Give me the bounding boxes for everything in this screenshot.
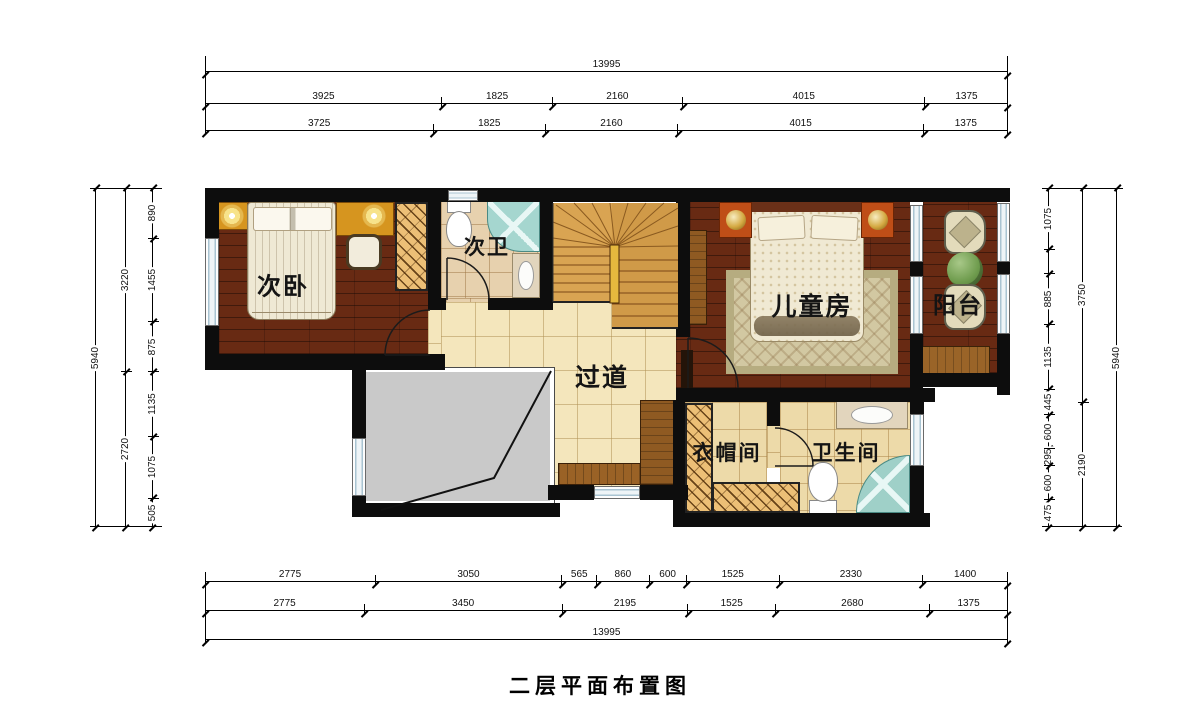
dim-value: 505 [148, 502, 158, 523]
dim-value: 3725 [308, 119, 330, 129]
window [910, 205, 923, 262]
dim-value: 890 [148, 203, 158, 224]
wall [205, 354, 445, 370]
dim-segment: 1455 [152, 239, 165, 322]
window [594, 486, 640, 499]
dim-left-mid: 32202720 [125, 188, 138, 527]
label-kids-room: 儿童房 [771, 287, 852, 323]
dim-segment: 1375 [925, 91, 1008, 104]
sink [836, 401, 908, 429]
dim-bottom-inner: 27753050565860600152523301400 [205, 569, 1008, 582]
dim-value: 600 [1044, 421, 1054, 442]
extension-line [90, 526, 162, 527]
dim-bottom-mid: 277534502195152526801375 [205, 598, 1008, 611]
wall [548, 485, 594, 500]
dim-value: 1525 [721, 599, 743, 609]
dim-segment: 3725 [205, 118, 433, 131]
wardrobe [395, 202, 428, 291]
dim-value: 13995 [593, 628, 621, 638]
wall [540, 188, 553, 310]
dim-value: 885 [1044, 289, 1054, 310]
dim-value: 875 [148, 337, 158, 358]
dim-segment: 2680 [775, 598, 929, 611]
dim-value: 2720 [121, 436, 131, 462]
window [910, 276, 923, 334]
dim-value: 1375 [955, 119, 977, 129]
window [997, 203, 1010, 262]
wall [673, 400, 685, 527]
dim-value: 3050 [457, 570, 479, 580]
dim-segment: 1825 [433, 118, 545, 131]
dim-right-total: 5940 [1116, 188, 1129, 527]
dim-value: 1375 [957, 599, 979, 609]
void-area [358, 368, 554, 505]
extension-line [1042, 526, 1122, 527]
dim-segment: 2775 [205, 569, 375, 582]
wall [352, 503, 560, 517]
dim-value: 2775 [279, 570, 301, 580]
label-second-bath: 次卫 [464, 231, 510, 261]
label-bathroom: 卫生间 [812, 437, 881, 467]
dim-value: 3925 [312, 92, 334, 102]
dim-right-mid: 37502190 [1082, 188, 1095, 527]
dim-left-inner: 890145587511351075505 [152, 188, 165, 527]
dim-segment: 3450 [364, 598, 562, 611]
dim-value: 1135 [1044, 344, 1054, 370]
dim-segment: 4015 [678, 118, 924, 131]
wall [910, 466, 924, 527]
nightstand-lamp [719, 202, 752, 238]
dim-value: 4015 [790, 119, 812, 129]
dim-value: 1375 [955, 92, 977, 102]
lamp-icon [362, 204, 386, 228]
lamp-icon [220, 204, 244, 228]
wardrobe [712, 482, 800, 513]
dim-segment: 3050 [375, 569, 562, 582]
dim-segment: 2160 [545, 118, 677, 131]
stair-rail [610, 245, 619, 303]
dim-segment: 2775 [205, 598, 364, 611]
dim-segment: 13995 [205, 627, 1008, 640]
wall [488, 298, 553, 310]
dim-value: 1400 [954, 570, 976, 580]
wall [673, 513, 930, 527]
page-title: 二层平面布置图 [0, 670, 1200, 700]
dim-segment: 3220 [125, 188, 138, 372]
wall [640, 485, 688, 500]
toilet [806, 460, 840, 514]
window [352, 438, 366, 496]
wall [767, 402, 780, 426]
dim-segment: 2330 [779, 569, 922, 582]
dim-value: 2190 [1078, 451, 1088, 477]
wall [910, 390, 924, 414]
dim-segment: 5940 [95, 188, 108, 527]
sink [512, 253, 540, 298]
wall [352, 354, 366, 438]
dim-segment: 5940 [1116, 188, 1129, 527]
dim-bottom-total: 13995 [205, 627, 1008, 640]
floor-doorway [428, 309, 441, 355]
dim-segment: 1375 [929, 598, 1008, 611]
dim-value: 2330 [840, 570, 862, 580]
dim-segment: 475 [1048, 500, 1061, 527]
dim-segment: 1525 [688, 598, 775, 611]
pillow [757, 215, 805, 241]
extension-line [1007, 56, 1008, 134]
dim-segment: 2195 [562, 598, 688, 611]
dim-segment: 600 [1048, 415, 1061, 449]
ottoman [346, 234, 382, 270]
label-cloakroom: 衣帽间 [693, 437, 762, 467]
extension-line [90, 188, 162, 189]
floorplan-canvas: 13995 39251825216040151375 3725182521604… [0, 0, 1200, 728]
dim-value: 2160 [600, 119, 622, 129]
dim-segment: 445 [1048, 389, 1061, 414]
dim-segment: 1400 [922, 569, 1008, 582]
extension-line [205, 572, 206, 642]
dim-left-total: 5940 [95, 188, 108, 527]
dim-segment: 1135 [1048, 324, 1061, 389]
dim-value: 3220 [121, 267, 131, 293]
label-second-bedroom: 次卧 [257, 267, 309, 302]
dim-top-total: 13995 [205, 59, 1008, 72]
dim-value: 2160 [606, 92, 628, 102]
dim-segment: 1825 [442, 91, 552, 104]
dim-segment: 2190 [1082, 402, 1095, 527]
dim-value: 1525 [722, 570, 744, 580]
floor-doorway [767, 425, 780, 468]
dim-value: 600 [1044, 472, 1054, 493]
dim-segment: 13995 [205, 59, 1008, 72]
dim-segment: 600 [649, 569, 686, 582]
wall [428, 298, 446, 310]
bench [920, 346, 990, 374]
corridor-cabinet [640, 400, 676, 485]
dim-value: 5940 [91, 344, 101, 370]
window [205, 238, 219, 326]
plant-icon [947, 252, 983, 288]
extension-line [1007, 572, 1008, 642]
dim-value: 4015 [793, 92, 815, 102]
dim-value: 445 [1044, 392, 1054, 413]
label-corridor: 过道 [575, 358, 629, 394]
window [448, 190, 478, 201]
wall [910, 262, 923, 276]
extension-line [1042, 188, 1122, 189]
dim-segment: 890 [152, 188, 165, 239]
bed-second-bedroom [247, 202, 336, 320]
armchair [944, 210, 986, 254]
extension-line [205, 56, 206, 134]
dim-segment [1048, 249, 1061, 274]
dim-value: 860 [615, 570, 632, 580]
wall [676, 188, 690, 337]
dim-value: 1825 [478, 119, 500, 129]
dim-value: 5940 [1112, 344, 1122, 370]
dim-value: 1825 [486, 92, 508, 102]
dim-segment: 505 [152, 498, 165, 527]
cabinet [681, 350, 693, 388]
dim-value: 600 [659, 570, 676, 580]
wall [676, 388, 935, 402]
wall [997, 262, 1010, 274]
nightstand-lamp [861, 202, 894, 238]
dim-segment: 2720 [125, 372, 138, 527]
dim-value: 2195 [614, 599, 636, 609]
dim-segment: 565 [562, 569, 597, 582]
dim-segment: 1525 [686, 569, 779, 582]
dim-value: 475 [1044, 503, 1054, 524]
dim-segment: 600 [1048, 466, 1061, 500]
dim-segment: 860 [597, 569, 650, 582]
wall [910, 373, 1010, 387]
dim-segment: 1135 [152, 372, 165, 437]
dim-value: 1455 [148, 267, 158, 293]
wall [428, 188, 441, 309]
dim-top-inner: 37251825216040151375 [205, 118, 1008, 131]
dim-segment: 1375 [924, 118, 1008, 131]
dim-segment: 1075 [152, 437, 165, 498]
label-balcony: 阳台 [933, 286, 983, 320]
dim-value: 2775 [273, 599, 295, 609]
window [910, 414, 924, 466]
dim-segment: 2160 [552, 91, 682, 104]
dim-right-inner: 10758851135445600295600475 [1048, 188, 1061, 527]
dim-value: 2680 [841, 599, 863, 609]
dim-top-mid: 39251825216040151375 [205, 91, 1008, 104]
pillow [810, 215, 858, 241]
dim-value: 3450 [452, 599, 474, 609]
dim-value: 1075 [148, 454, 158, 480]
dim-value: 1135 [148, 392, 158, 418]
dim-segment: 875 [152, 322, 165, 372]
dim-value: 565 [571, 570, 588, 580]
dim-value: 13995 [593, 60, 621, 70]
dim-segment: 4015 [683, 91, 925, 104]
dim-segment: 885 [1048, 274, 1061, 325]
dim-segment: 1075 [1048, 188, 1061, 249]
window [997, 274, 1010, 334]
dim-value: 1075 [1044, 206, 1054, 232]
corridor-cabinet [558, 463, 642, 485]
dim-segment: 3925 [205, 91, 442, 104]
dim-segment: 3750 [1082, 188, 1095, 402]
wall [205, 188, 1010, 202]
dim-value: 3750 [1078, 282, 1088, 308]
